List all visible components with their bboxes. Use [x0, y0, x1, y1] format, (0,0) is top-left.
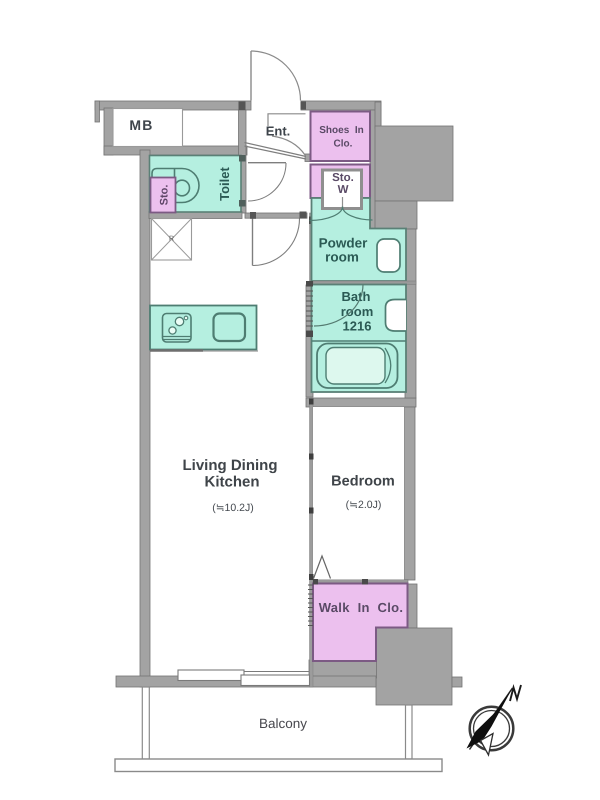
svg-text:R: R [169, 236, 174, 243]
svg-text:Shoes In: Shoes In [319, 125, 363, 136]
svg-text:Sto.: Sto. [332, 172, 354, 184]
svg-text:Walk In Clo.: Walk In Clo. [319, 600, 404, 615]
svg-text:Living Dining: Living Dining [183, 457, 278, 474]
svg-text:room: room [325, 250, 359, 265]
svg-text:Kitchen: Kitchen [204, 474, 259, 491]
svg-text:MB: MB [129, 117, 153, 133]
svg-text:1216: 1216 [343, 319, 372, 334]
svg-text:Bath: Bath [342, 289, 371, 304]
svg-text:Bedroom: Bedroom [331, 474, 395, 490]
svg-text:(≒10.2J): (≒10.2J) [212, 502, 254, 514]
svg-text:Toilet: Toilet [217, 166, 232, 200]
svg-text:Sto.: Sto. [159, 185, 171, 206]
svg-text:(≒2.0J): (≒2.0J) [346, 499, 382, 511]
svg-text:Powder: Powder [319, 236, 369, 251]
svg-text:W: W [338, 184, 349, 196]
svg-text:Ent.: Ent. [266, 124, 291, 139]
svg-text:Balcony: Balcony [259, 716, 307, 731]
svg-text:Clo.: Clo. [334, 139, 353, 150]
